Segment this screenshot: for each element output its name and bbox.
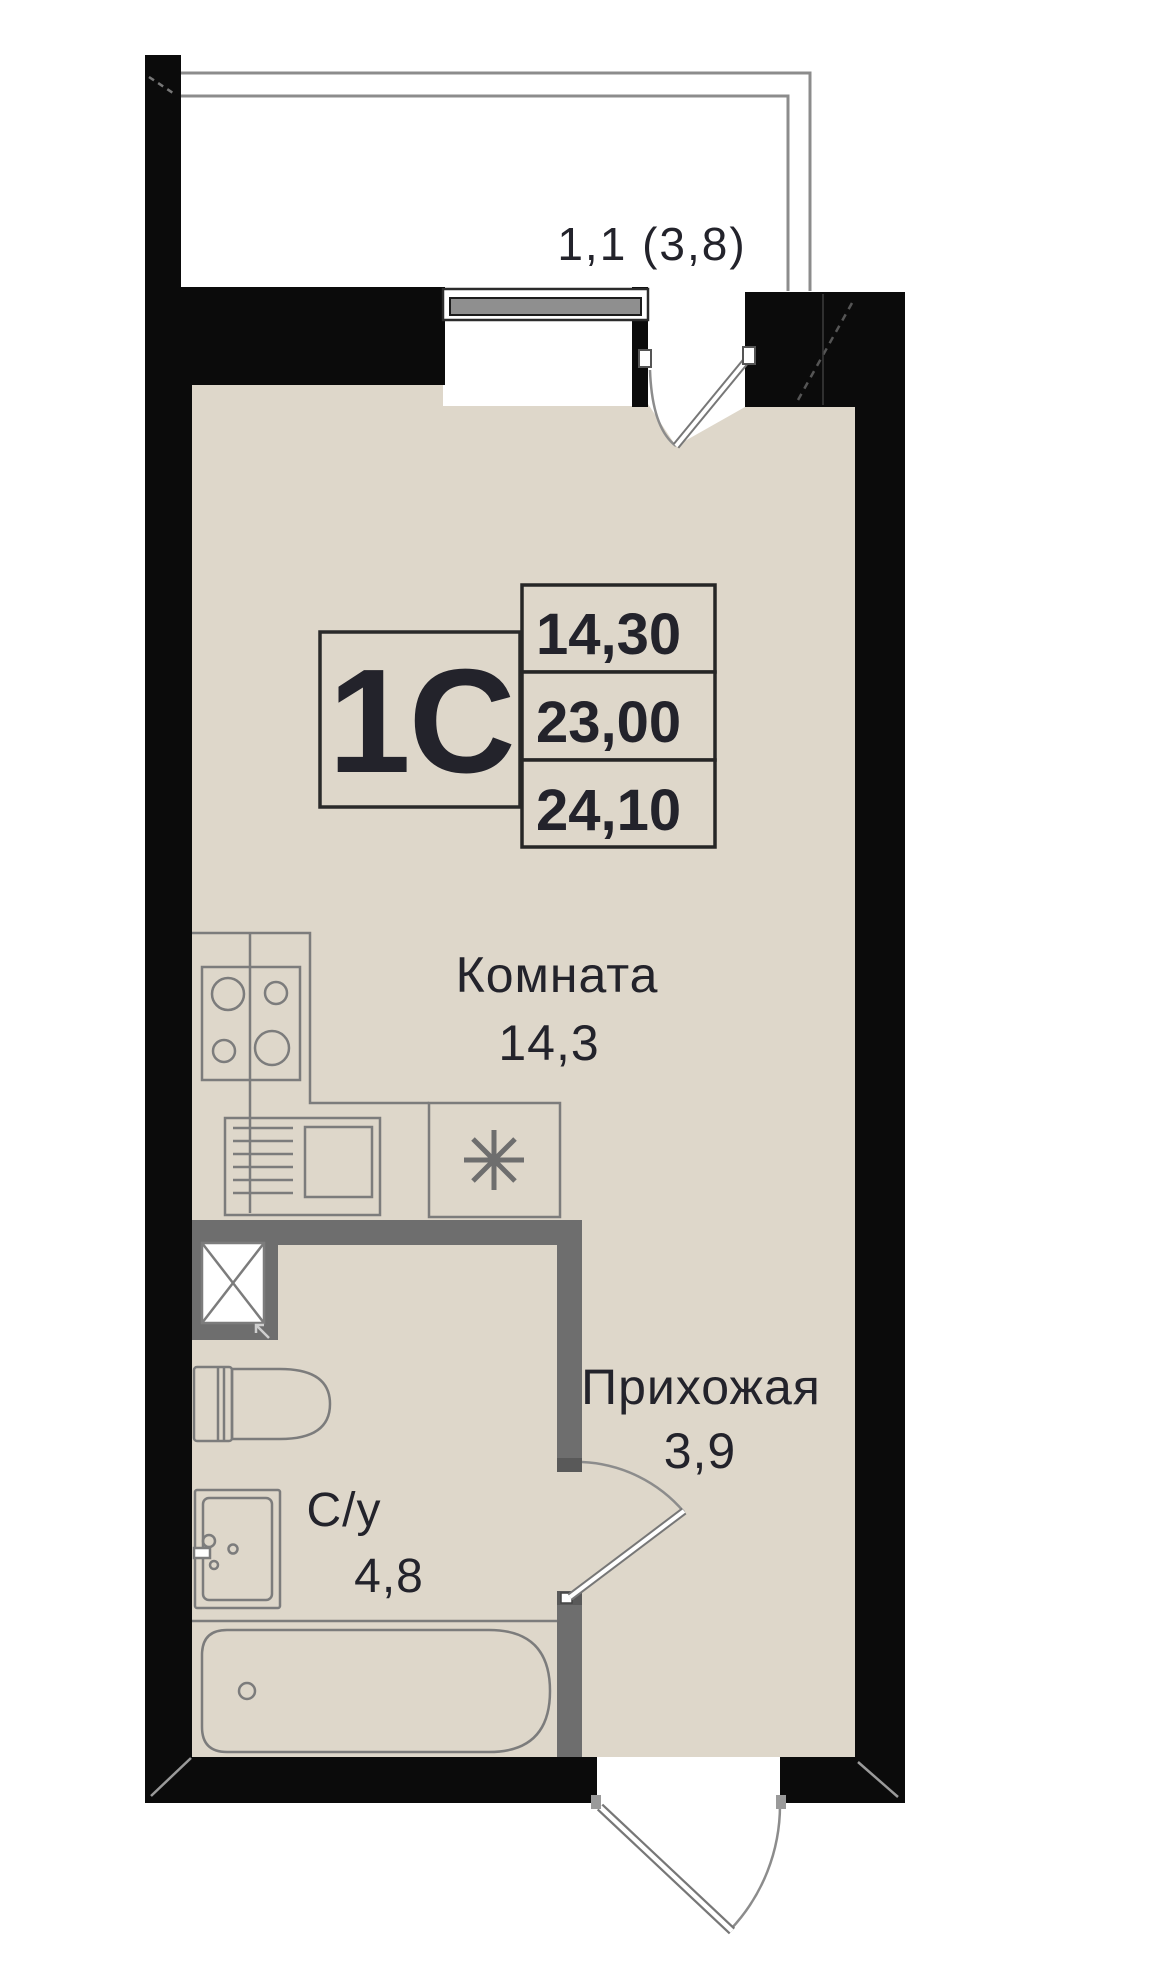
entrance-door-swing [591, 1795, 786, 1931]
unit-type-box: 1С [320, 632, 520, 807]
wall-bottom-left [145, 1757, 597, 1803]
floor-plan: 1С 14,30 23,00 24,10 1,1 (3,8) Комната 1… [0, 0, 1155, 1980]
partition-bathroom-right-up [557, 1220, 582, 1458]
wall-top-left-column [145, 55, 181, 292]
unit-type-label: 1С [328, 639, 513, 804]
room-area-living: 14,3 [498, 1015, 599, 1071]
room-label-hall: Прихожая [581, 1359, 821, 1415]
room-label-bathroom: С/у [307, 1484, 382, 1537]
area-value-living: 14,30 [536, 602, 681, 667]
partition-bathroom-right-down [557, 1605, 582, 1757]
area-value-total-with-balcony: 24,10 [536, 778, 681, 843]
window [443, 289, 648, 320]
areas-table: 14,30 23,00 24,10 [522, 585, 715, 847]
room-label-living: Комната [456, 947, 659, 1003]
floor-plan-page: 1С 14,30 23,00 24,10 1,1 (3,8) Комната 1… [0, 0, 1155, 1980]
room-area-hall: 3,9 [664, 1423, 737, 1479]
wall-right [855, 292, 905, 1803]
wall-left [145, 292, 192, 1803]
room-area-bathroom: 4,8 [354, 1550, 424, 1603]
wall-bottom-right [780, 1757, 905, 1803]
balcony-area-label: 1,1 (3,8) [557, 218, 746, 270]
area-value-total: 23,00 [536, 690, 681, 755]
vent-shaft-icon [202, 1243, 269, 1338]
